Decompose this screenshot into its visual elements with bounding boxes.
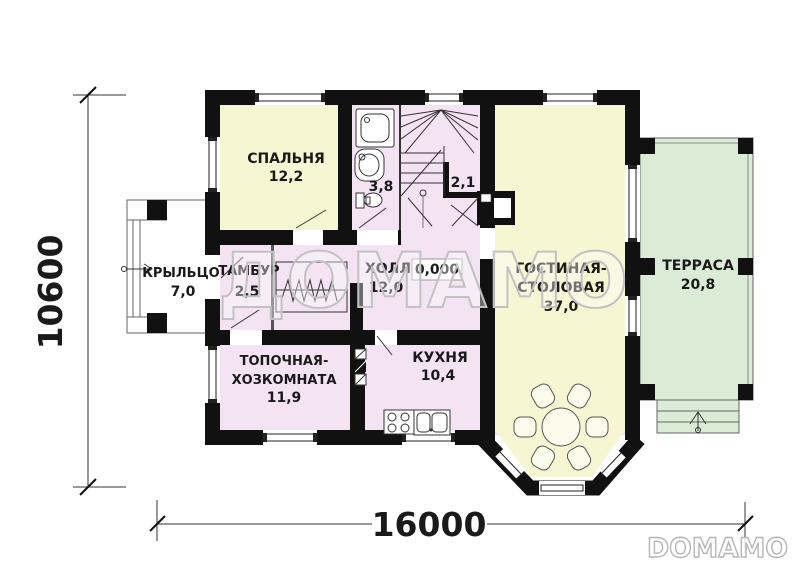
chair-icon xyxy=(586,417,608,437)
porch-pillar xyxy=(147,200,167,220)
window xyxy=(205,346,220,403)
terrace-area: 20,8 xyxy=(681,277,716,293)
terrace-door xyxy=(625,165,640,242)
terrace-pillar xyxy=(738,258,753,275)
window xyxy=(255,90,325,105)
window xyxy=(263,430,317,445)
terrace-pillar xyxy=(640,258,655,275)
bathroom-area: 3,8 xyxy=(369,179,394,195)
bedroom-label: СПАЛЬНЯ xyxy=(247,151,325,167)
stair-storage-area: 2,1 xyxy=(451,175,476,191)
kitchen-label: КУХНЯ xyxy=(412,350,468,366)
chair-icon xyxy=(514,417,536,437)
window xyxy=(425,90,463,105)
height-dimension-label: 10600 xyxy=(31,235,70,350)
kitchen-area: 10,4 xyxy=(421,368,456,384)
boiler-label-1: ТОПОЧНАЯ- xyxy=(240,354,329,369)
brand-logo: DOMAMO xyxy=(647,533,788,564)
bedroom-area: 12,2 xyxy=(269,169,304,185)
terrace-pillar xyxy=(640,138,655,154)
floor-plan-page: 10600 16000 xyxy=(0,0,800,565)
terrace-label: ТЕРРАСА xyxy=(662,258,734,274)
width-dimension-label: 16000 xyxy=(372,505,487,544)
entry-arrow-origin xyxy=(122,267,127,272)
terrace-pillar xyxy=(738,138,753,154)
center-watermark: ДОМАМО xyxy=(218,236,628,325)
porch-label: КРЫЛЬЦО xyxy=(142,266,219,281)
dimension-height: 10600 xyxy=(31,87,126,495)
boiler-area: 11,9 xyxy=(267,390,302,406)
toilet-icon xyxy=(356,193,364,208)
window xyxy=(205,137,220,192)
bedroom-floor xyxy=(220,105,338,230)
terrace-pillar xyxy=(640,384,655,400)
window xyxy=(543,90,597,105)
boiler-label-2: ХОЗКОМНАТА xyxy=(232,373,337,388)
shower-icon xyxy=(356,109,394,147)
porch-area: 7,0 xyxy=(171,284,196,300)
floor-plan-drawing: 10600 16000 xyxy=(0,0,800,565)
porch-pillar xyxy=(147,313,167,333)
dining-table-icon xyxy=(542,408,580,446)
terrace-pillar xyxy=(738,384,753,400)
